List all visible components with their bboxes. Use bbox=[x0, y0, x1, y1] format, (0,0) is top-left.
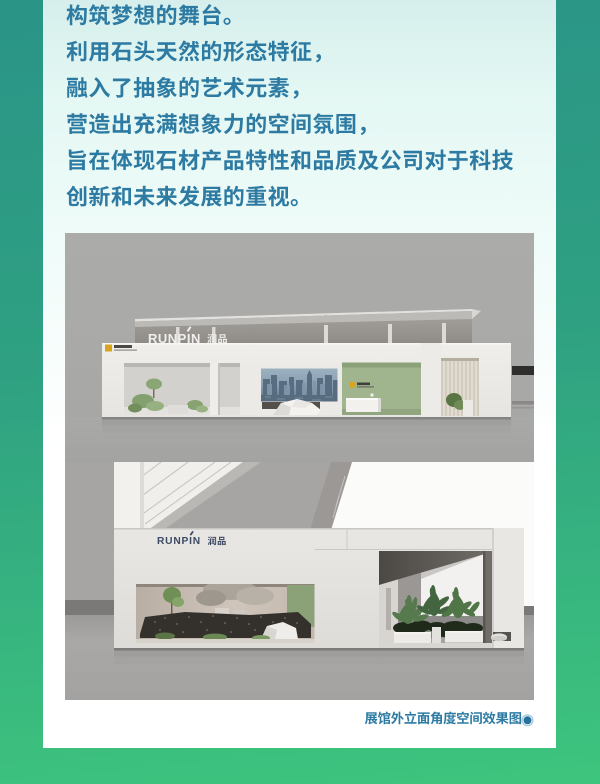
svg-text:RUNPIN: RUNPIN bbox=[157, 536, 201, 547]
